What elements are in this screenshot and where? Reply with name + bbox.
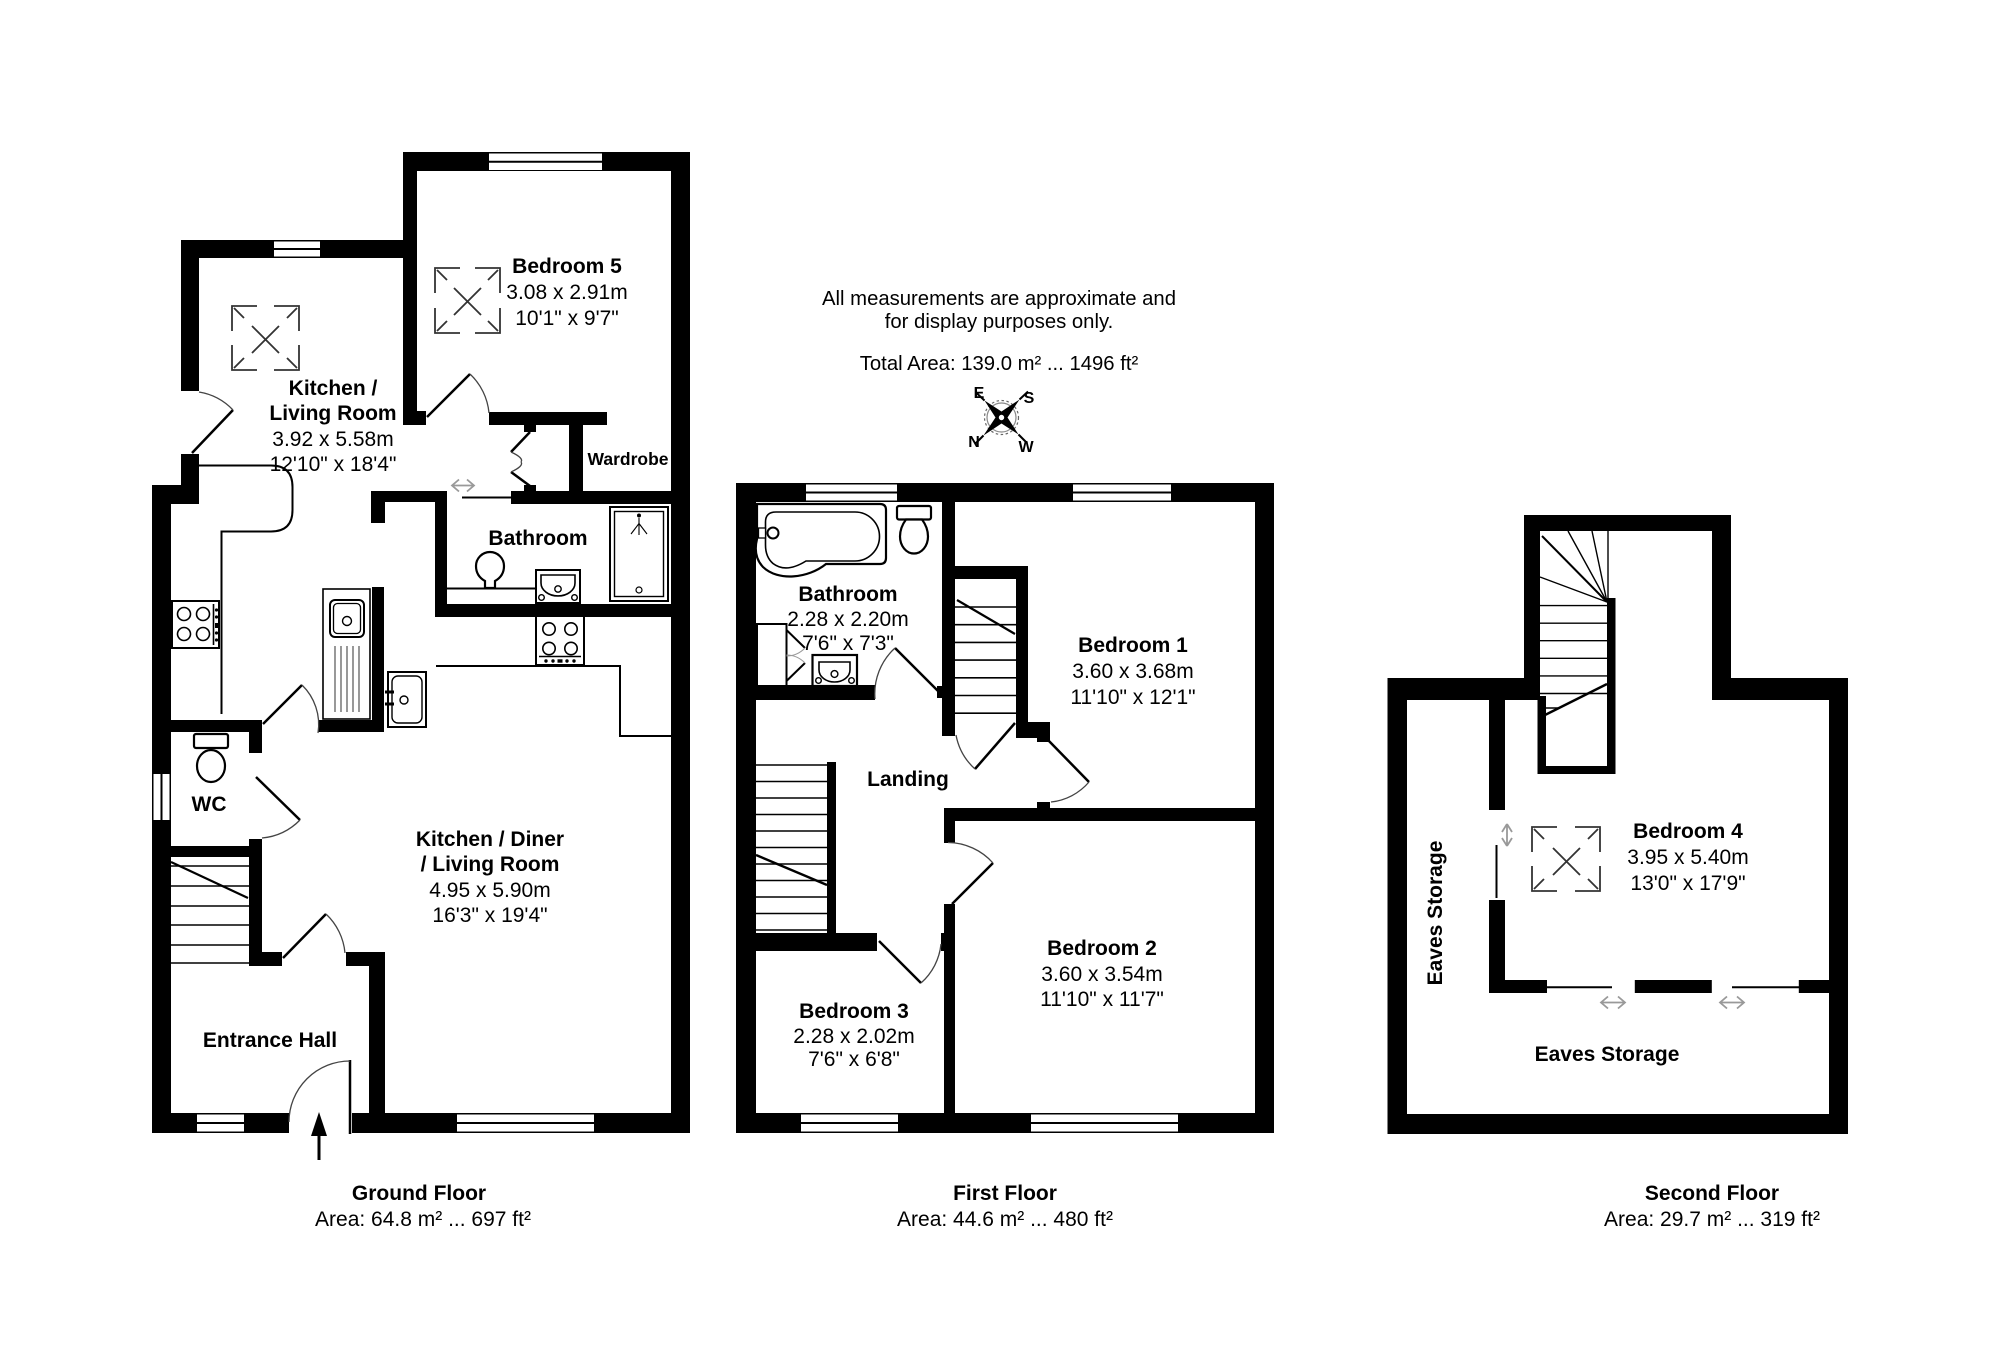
svg-text:Kitchen /: Kitchen / [289, 377, 378, 400]
svg-text:11'10" x 12'1": 11'10" x 12'1" [1070, 686, 1195, 709]
svg-text:3.08 x 2.91m: 3.08 x 2.91m [506, 281, 627, 304]
svg-text:S: S [1024, 390, 1035, 407]
svg-text:Wardrobe: Wardrobe [587, 449, 668, 469]
svg-text:/ Living Room: / Living Room [421, 853, 560, 876]
svg-text:All measurements are approxima: All measurements are approximate and [822, 288, 1176, 310]
svg-text:WC: WC [192, 793, 227, 816]
svg-text:Bathroom: Bathroom [798, 583, 897, 606]
svg-text:Bedroom 5: Bedroom 5 [512, 255, 622, 278]
svg-text:4.95 x 5.90m: 4.95 x 5.90m [429, 879, 550, 902]
svg-text:3.92 x 5.58m: 3.92 x 5.58m [272, 428, 393, 451]
svg-text:Eaves Storage: Eaves Storage [1535, 1043, 1680, 1066]
svg-text:3.95 x 5.40m: 3.95 x 5.40m [1627, 846, 1748, 869]
svg-text:11'10" x 11'7": 11'10" x 11'7" [1040, 988, 1164, 1011]
svg-text:7'6" x 6'8": 7'6" x 6'8" [808, 1048, 900, 1071]
svg-text:Kitchen / Diner: Kitchen / Diner [416, 828, 564, 851]
svg-text:Area: 64.8 m² ... 697 ft²: Area: 64.8 m² ... 697 ft² [315, 1208, 531, 1231]
svg-text:3.60 x 3.68m: 3.60 x 3.68m [1072, 660, 1193, 683]
svg-text:First Floor: First Floor [953, 1182, 1057, 1205]
svg-text:2.28 x 2.20m: 2.28 x 2.20m [787, 608, 908, 631]
svg-text:16'3" x 19'4": 16'3" x 19'4" [432, 904, 547, 927]
svg-text:Bedroom 3: Bedroom 3 [799, 1000, 909, 1023]
svg-text:Bedroom 4: Bedroom 4 [1633, 820, 1743, 843]
svg-text:Second Floor: Second Floor [1645, 1182, 1779, 1205]
svg-text:10'1" x 9'7": 10'1" x 9'7" [515, 307, 619, 330]
svg-text:Area: 44.6 m² ... 480 ft²: Area: 44.6 m² ... 480 ft² [897, 1208, 1113, 1231]
svg-text:Ground Floor: Ground Floor [352, 1182, 486, 1205]
svg-text:Bedroom 2: Bedroom 2 [1047, 937, 1157, 960]
svg-text:3.60 x 3.54m: 3.60 x 3.54m [1041, 963, 1162, 986]
svg-text:Bedroom 1: Bedroom 1 [1078, 634, 1188, 657]
svg-text:13'0" x 17'9": 13'0" x 17'9" [1630, 872, 1745, 895]
svg-text:Total Area: 139.0 m² ... 1496: Total Area: 139.0 m² ... 1496 ft² [860, 353, 1139, 375]
svg-text:Eaves Storage: Eaves Storage [1424, 841, 1447, 986]
svg-text:7'6" x 7'3": 7'6" x 7'3" [802, 632, 894, 655]
svg-text:Living Room: Living Room [269, 402, 396, 425]
svg-text:for display purposes only.: for display purposes only. [885, 311, 1113, 333]
svg-text:Landing: Landing [867, 768, 949, 791]
svg-text:Entrance Hall: Entrance Hall [203, 1029, 337, 1052]
svg-text:W: W [1018, 439, 1034, 456]
svg-text:Area: 29.7 m² ... 319 ft²: Area: 29.7 m² ... 319 ft² [1604, 1208, 1820, 1231]
svg-text:Bathroom: Bathroom [488, 527, 587, 550]
svg-text:2.28 x 2.02m: 2.28 x 2.02m [793, 1025, 914, 1048]
svg-text:E: E [974, 385, 985, 402]
svg-text:N: N [968, 434, 980, 451]
